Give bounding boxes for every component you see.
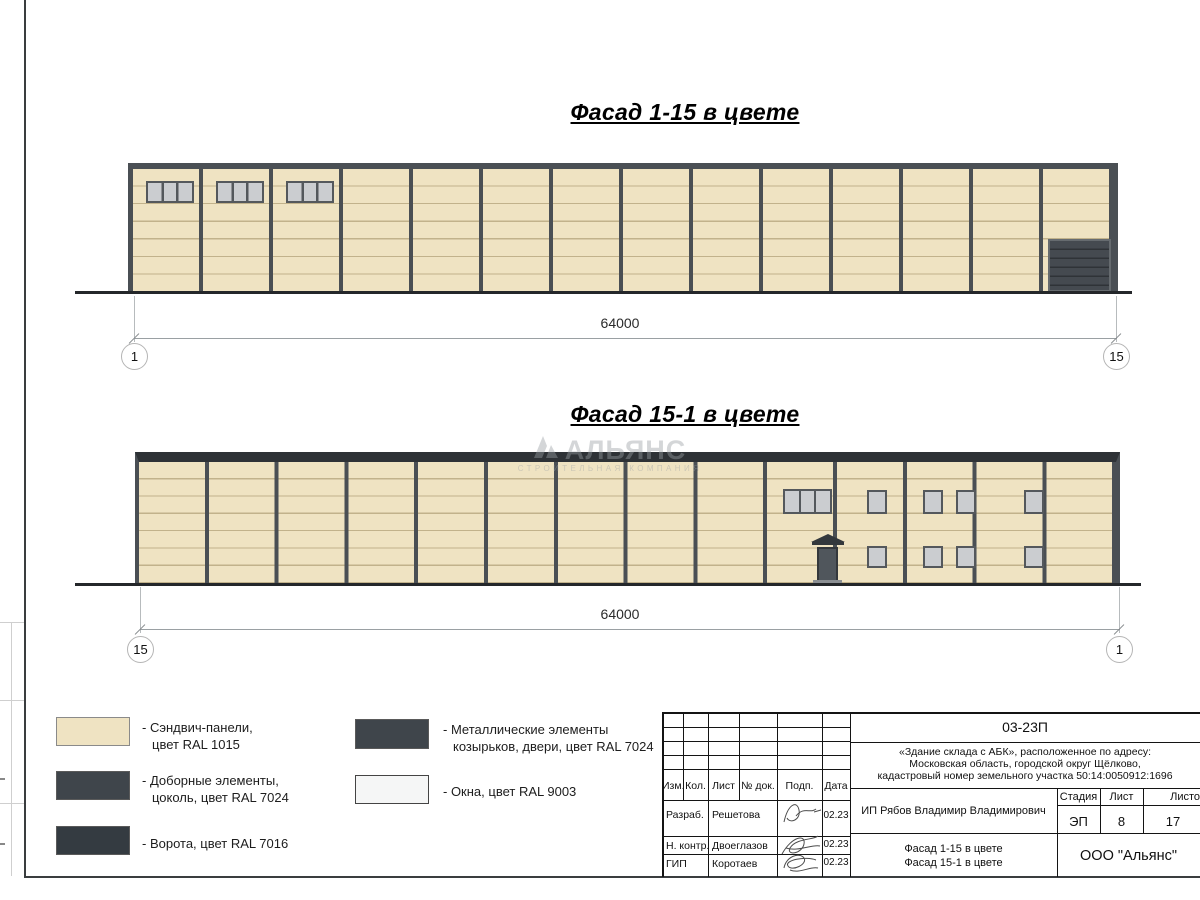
- sheet-name-line1: Фасад 1-15 в цвете: [850, 843, 1057, 855]
- titleblock-line: [850, 833, 1200, 834]
- legend-label-gate: - Ворота, цвет RAL 7016: [142, 835, 288, 852]
- col-list: Лист: [708, 780, 739, 792]
- axis-marker-15: 15: [127, 636, 154, 663]
- legend-swatch-sandwich: [56, 717, 130, 746]
- sheets-total-label: Листов: [1143, 791, 1200, 803]
- ribbon-window: [783, 489, 832, 514]
- company-name: ООО "Альянс": [1057, 848, 1200, 864]
- titleblock-line: [708, 712, 709, 877]
- ribbon-window: [286, 181, 334, 203]
- client-name: ИП Рябов Владимир Владимирович: [850, 805, 1057, 817]
- role-ncontrol: Н. контр.: [666, 840, 709, 852]
- legend-swatch-gate: [56, 826, 130, 855]
- ribbon-window: [216, 181, 264, 203]
- frame-margin-tick: [0, 843, 5, 845]
- window: [956, 490, 976, 514]
- legend-label-dobory: - Доборные элементы,цоколь, цвет RAL 702…: [142, 772, 289, 806]
- frame-margin-line: [11, 622, 12, 876]
- window: [1024, 490, 1044, 514]
- ground-line: [75, 583, 1141, 586]
- sheet-number: 8: [1100, 814, 1143, 829]
- legend-swatch-metal: [355, 719, 429, 749]
- titleblock-line: [850, 742, 1200, 743]
- legend-label-windows: - Окна, цвет RAL 9003: [443, 783, 576, 800]
- window: [923, 490, 943, 514]
- legend-swatch-windows: [355, 775, 429, 804]
- name-gip: Коротаев: [712, 858, 757, 870]
- titleblock-line: [1057, 805, 1200, 806]
- entrance-door: [817, 547, 838, 583]
- date-ncontrol: 02.23: [822, 839, 850, 850]
- window: [867, 546, 887, 568]
- facade1-elevation: [128, 163, 1118, 292]
- facade2-title: Фасад 15-1 в цвете: [420, 401, 950, 428]
- window: [1024, 546, 1044, 568]
- facade1-total-dimension: 64000: [520, 315, 720, 331]
- col-kol: Кол.: [683, 780, 708, 792]
- axis-marker-1: 1: [1106, 636, 1133, 663]
- sheet-name-line2: Фасад 15-1 в цвете: [850, 857, 1057, 869]
- name-developer: Решетова: [712, 809, 760, 821]
- sheets-total-value: 17: [1143, 814, 1200, 829]
- name-ncontrol: Двоеглазов: [712, 840, 768, 852]
- signature-scribbles: [778, 796, 824, 876]
- ground-line: [75, 291, 1132, 294]
- doc-code: 03-23П: [850, 719, 1200, 735]
- watermark-logo-icon: [534, 436, 558, 463]
- titleblock-line: [662, 712, 1200, 714]
- frame-margin-line: [0, 700, 24, 701]
- drawing-sheet: Фасад 1-15 в цвете 64000 1 15 Фасад 15-1…: [0, 0, 1200, 900]
- watermark: АЛЬЯНС СТРОИТЕЛЬНАЯ КОМПАНИЯ: [455, 436, 765, 473]
- watermark-brand: АЛЬЯНС: [565, 437, 687, 463]
- col-izm: Изм.: [662, 780, 683, 792]
- col-podp: Подп.: [777, 780, 822, 792]
- titleblock-line: [662, 712, 664, 877]
- legend-label-metal: - Металлические элементыкозырьков, двери…: [443, 721, 654, 755]
- titleblock-line: [850, 788, 1200, 789]
- frame-margin-line: [0, 803, 24, 804]
- axis-marker-1: 1: [121, 343, 148, 370]
- door-canopy-bar: [812, 542, 844, 545]
- stage-value: ЭП: [1057, 814, 1100, 829]
- watermark-tagline: СТРОИТЕЛЬНАЯ КОМПАНИЯ: [455, 464, 765, 473]
- axis-marker-15: 15: [1103, 343, 1130, 370]
- frame-margin-line: [0, 622, 24, 623]
- frame-bottom-border: [24, 876, 1200, 878]
- dimension-line: [134, 338, 1117, 339]
- frame-margin-tick: [0, 778, 5, 780]
- sheet-label: Лист: [1100, 791, 1143, 803]
- date-developer: 02.23: [822, 810, 850, 821]
- role-gip: ГИП: [666, 858, 687, 870]
- project-description-line3: кадастровый номер земельного участка 50:…: [850, 770, 1200, 782]
- door-canopy-icon: [811, 534, 845, 542]
- col-data: Дата: [822, 780, 850, 792]
- dimension-line: [140, 629, 1120, 630]
- facade1-title: Фасад 1-15 в цвете: [420, 99, 950, 126]
- date-gip: 02.23: [822, 857, 850, 868]
- window: [923, 546, 943, 568]
- ribbon-window: [146, 181, 194, 203]
- facade2-total-dimension: 64000: [520, 606, 720, 622]
- frame-left-border: [24, 0, 26, 878]
- legend-swatch-dobory: [56, 771, 130, 800]
- window: [956, 546, 976, 568]
- project-description-line2: Московская область, городской округ Щёлк…: [850, 758, 1200, 770]
- col-doc: № док.: [739, 780, 777, 792]
- legend-label-sandwich: - Сэндвич-панели,цвет RAL 1015: [142, 719, 253, 753]
- role-developer: Разраб.: [666, 809, 704, 821]
- window: [867, 490, 887, 514]
- stage-label: Стадия: [1057, 791, 1100, 803]
- sectional-gate: [1048, 239, 1111, 292]
- project-description-line1: «Здание склада с АБК», расположенное по …: [850, 746, 1200, 758]
